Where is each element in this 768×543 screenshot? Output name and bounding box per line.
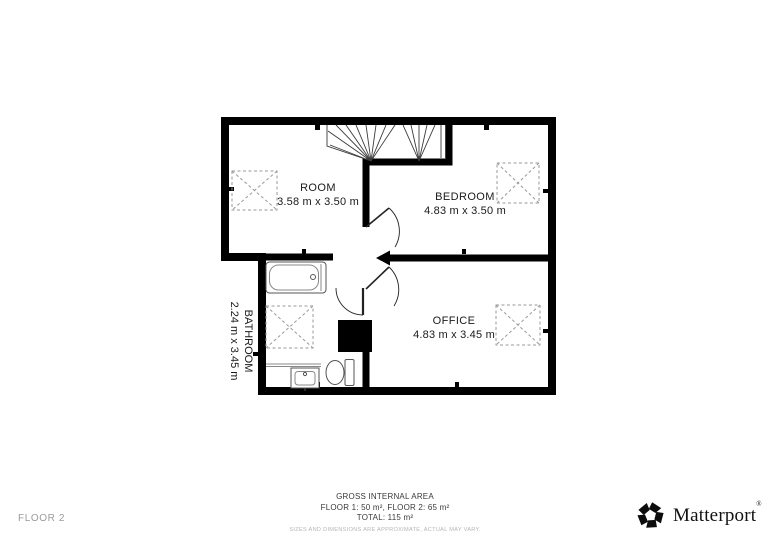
sink-icon bbox=[266, 364, 321, 391]
area-summary: GROSS INTERNAL AREA FLOOR 1: 50 m², FLOO… bbox=[235, 492, 535, 535]
chimney-block bbox=[338, 320, 372, 352]
wall-junction-wedge bbox=[376, 251, 390, 266]
bathtub-icon bbox=[266, 262, 326, 293]
brand-name: Matterport bbox=[673, 505, 756, 526]
room-label-office: OFFICE 4.83 m x 3.45 m bbox=[374, 315, 534, 342]
room-name: OFFICE bbox=[374, 315, 534, 329]
bathroom-door-icon bbox=[336, 288, 363, 315]
room-dimensions: 4.83 m x 3.50 m bbox=[385, 205, 545, 219]
room-label-bedroom: BEDROOM 4.83 m x 3.50 m bbox=[385, 191, 545, 218]
matterport-icon bbox=[634, 499, 667, 532]
registered-mark: ® bbox=[756, 500, 762, 508]
room-name: BATHROOM bbox=[241, 261, 255, 421]
room-label-bathroom: BATHROOM 2.24 m x 3.45 m bbox=[226, 261, 254, 421]
stairs-icon bbox=[327, 125, 446, 161]
floorplan-page: ROOM 3.58 m x 3.50 m BEDROOM 4.83 m x 3.… bbox=[0, 0, 768, 543]
office-door-icon bbox=[366, 267, 399, 306]
room-dimensions: 3.58 m x 3.50 m bbox=[238, 196, 398, 210]
floor-label: FLOOR 2 bbox=[18, 513, 65, 524]
room-name: BEDROOM bbox=[385, 191, 545, 205]
summary-title: GROSS INTERNAL AREA bbox=[235, 492, 535, 503]
floorplan-drawing bbox=[0, 0, 768, 543]
room-dimensions: 2.24 m x 3.45 m bbox=[227, 261, 241, 421]
brand-logo: Matterport® bbox=[634, 499, 762, 532]
room-label-room: ROOM 3.58 m x 3.50 m bbox=[238, 182, 398, 209]
summary-floors: FLOOR 1: 50 m², FLOOR 2: 65 m² bbox=[235, 503, 535, 514]
brand-wordmark: Matterport® bbox=[673, 505, 762, 527]
room-name: ROOM bbox=[238, 182, 398, 196]
summary-total: TOTAL: 115 m² bbox=[235, 513, 535, 524]
summary-disclaimer: SIZES AND DIMENSIONS ARE APPROXIMATE, AC… bbox=[235, 525, 535, 536]
room-dimensions: 4.83 m x 3.45 m bbox=[374, 329, 534, 343]
toilet-icon bbox=[326, 360, 354, 386]
skylight-bathroom-icon bbox=[266, 306, 313, 348]
